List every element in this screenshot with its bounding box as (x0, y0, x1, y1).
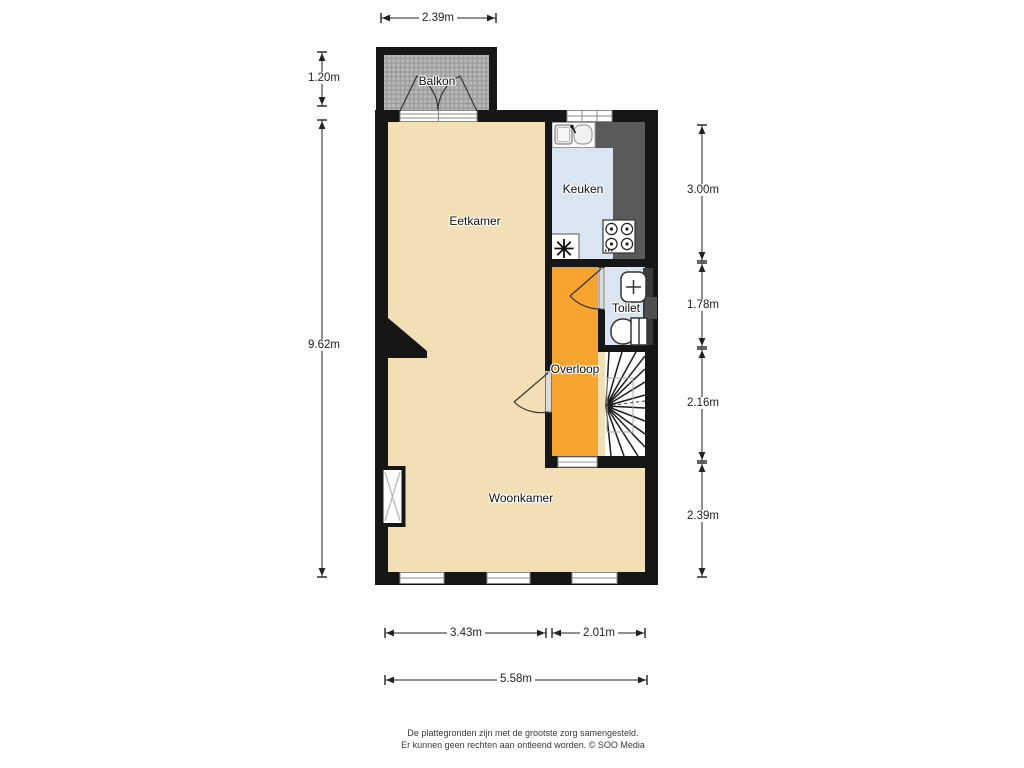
landing-bottom-opening (558, 457, 597, 467)
dim-label-bottom-5-58m: 5.58m (497, 673, 535, 685)
room-label-woonkamer: Woonkamer (489, 491, 553, 505)
dim-label-right-2-16m: 2.16m (684, 397, 722, 409)
room-label-balkon: Balkon (419, 74, 456, 88)
boiler-icon (549, 234, 579, 263)
footer-disclaimer: De plattegronden zijn met de grootste zo… (401, 727, 645, 751)
dim-label-left-9-62m: 9.62m (305, 339, 343, 351)
dim-label-left-1-20m: 1.20m (305, 72, 343, 84)
footer-line-2: Er kunnen geen rechten aan ontleend word… (401, 739, 645, 751)
dim-label-top-2-39m: 2.39m (419, 12, 457, 24)
bottom-window-1 (400, 573, 444, 584)
duct-shaft (645, 297, 657, 319)
room-label-eetkamer: Eetkamer (449, 214, 500, 228)
dim-label-bottom-2-01m: 2.01m (580, 627, 618, 639)
room-label-toilet: Toilet (612, 301, 640, 315)
balcony-door-opening (400, 111, 477, 122)
radiator-icon (382, 468, 404, 525)
kitchen-window (567, 111, 612, 122)
stove-icon (603, 220, 635, 253)
kitchen-sink-icon (552, 123, 595, 148)
floor-plan-canvas (0, 0, 1024, 768)
hand-basin-icon (621, 272, 646, 302)
footer-line-1: De plattegronden zijn met de grootste zo… (401, 727, 645, 739)
room-label-keuken: Keuken (563, 182, 604, 196)
toilet-bowl-icon (611, 318, 647, 345)
dim-label-right-2-39m: 2.39m (684, 510, 722, 522)
bottom-window-3 (572, 573, 617, 584)
dim-label-right-1-78m: 1.78m (684, 299, 722, 311)
room-label-overloop: Overloop (551, 362, 600, 376)
bottom-window-2 (487, 573, 530, 584)
dim-label-right-3-00m: 3.00m (684, 184, 722, 196)
dim-label-bottom-3-43m: 3.43m (447, 627, 485, 639)
floorplan-page: Balkon Eetkamer Keuken Toilet Overloop W… (0, 0, 1024, 768)
